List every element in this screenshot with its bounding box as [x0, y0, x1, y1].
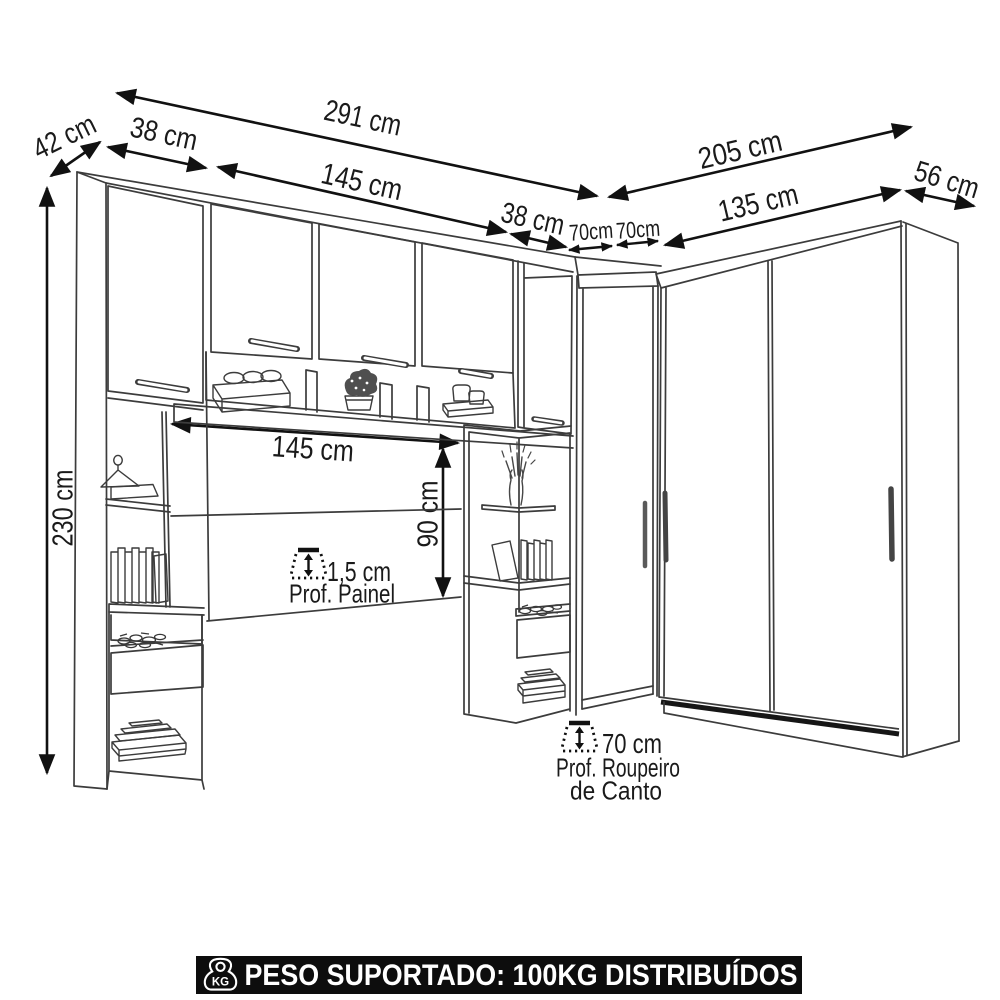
svg-text:Prof. Painel: Prof. Painel: [289, 578, 395, 608]
svg-text:70cm: 70cm: [568, 217, 614, 246]
svg-text:145 cm: 145 cm: [271, 430, 355, 468]
svg-text:de Canto: de Canto: [570, 775, 662, 805]
svg-text:70cm: 70cm: [615, 215, 661, 244]
svg-text:KG: KG: [212, 977, 229, 989]
svg-text:PESO SUPORTADO: 100KG DISTRIBU: PESO SUPORTADO: 100KG DISTRIBUÍDOS: [245, 958, 798, 992]
svg-text:90 cm: 90 cm: [412, 481, 444, 548]
